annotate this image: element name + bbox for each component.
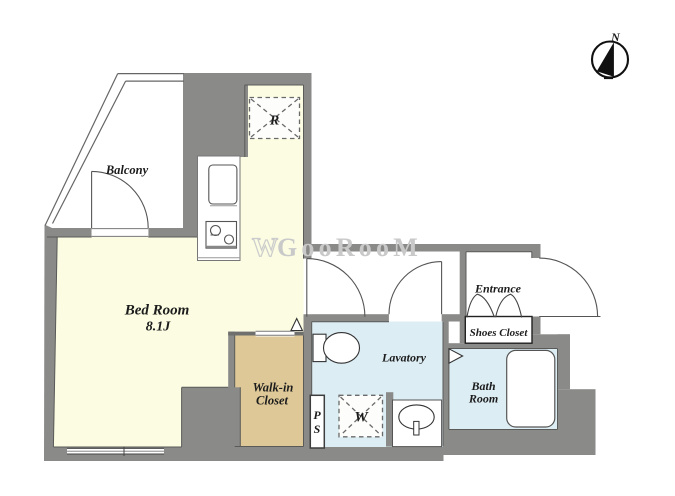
svg-text:P: P xyxy=(313,408,321,422)
svg-text:Balcony: Balcony xyxy=(105,163,149,177)
svg-text:S: S xyxy=(314,422,321,436)
svg-text:R: R xyxy=(269,114,279,129)
svg-text:N: N xyxy=(610,30,621,44)
svg-text:Room: Room xyxy=(468,392,498,406)
svg-text:Walk-in: Walk-in xyxy=(253,381,294,395)
svg-text:W: W xyxy=(354,410,369,426)
svg-text:Lavatory: Lavatory xyxy=(381,351,427,365)
svg-text:GooRooM: GooRooM xyxy=(277,233,422,262)
svg-text:Bed Room: Bed Room xyxy=(124,303,190,319)
svg-text:Closet: Closet xyxy=(256,394,288,408)
svg-text:Entrance: Entrance xyxy=(474,282,522,296)
svg-text:8.1J: 8.1J xyxy=(146,320,172,335)
svg-text:Shoes Closet: Shoes Closet xyxy=(470,327,529,339)
svg-text:W: W xyxy=(252,233,278,262)
